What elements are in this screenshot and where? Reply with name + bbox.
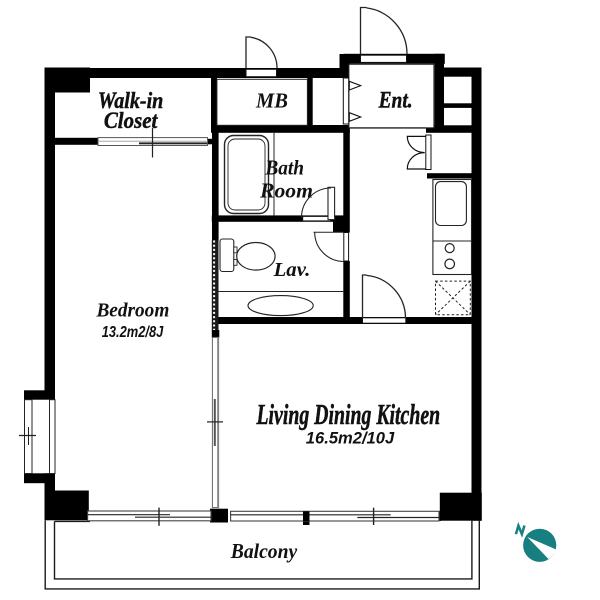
- svg-text:Lav.: Lav.: [273, 259, 311, 281]
- svg-text:Room: Room: [259, 178, 313, 202]
- svg-text:MB: MB: [255, 88, 288, 112]
- svg-text:13.2m2/8J: 13.2m2/8J: [102, 324, 164, 341]
- svg-text:Balcony: Balcony: [230, 539, 298, 563]
- svg-text:Bedroom: Bedroom: [95, 299, 169, 321]
- svg-text:Bath: Bath: [264, 156, 304, 180]
- svg-text:16.5m2/10J: 16.5m2/10J: [306, 430, 395, 448]
- svg-text:Ent.: Ent.: [378, 88, 413, 113]
- svg-text:Closet: Closet: [104, 108, 158, 133]
- svg-text:Living Dining Kitchen: Living Dining Kitchen: [256, 399, 440, 431]
